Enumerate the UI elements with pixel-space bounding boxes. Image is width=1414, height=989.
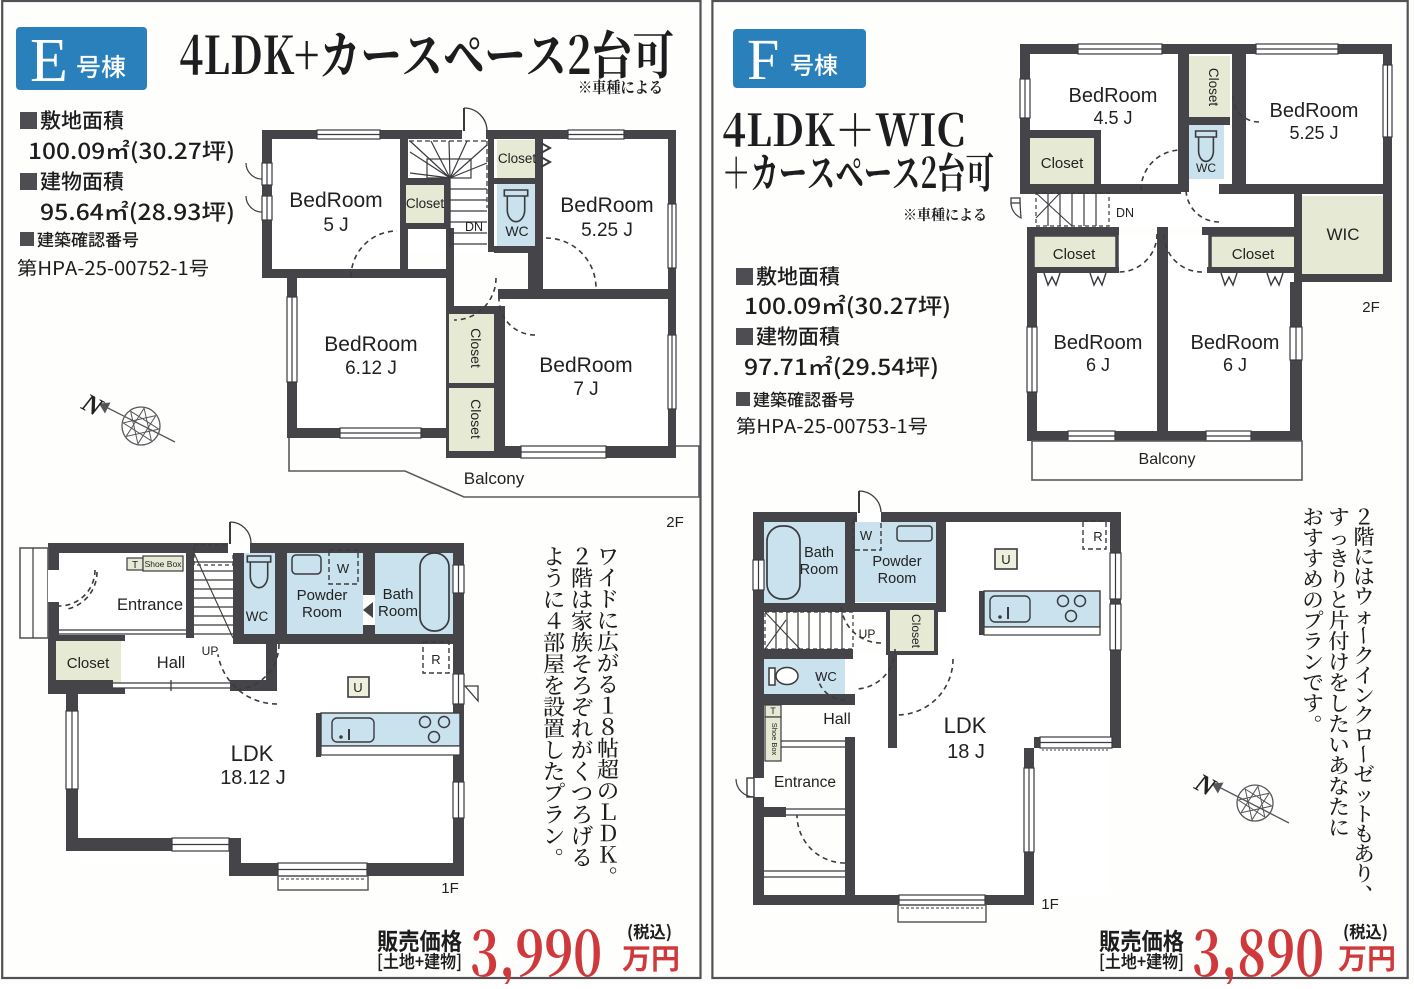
svg-text:R: R: [1093, 529, 1102, 544]
svg-text:WC: WC: [1196, 161, 1216, 175]
svg-text:5.25 J: 5.25 J: [1289, 123, 1338, 143]
svg-text:W: W: [860, 528, 873, 543]
svg-text:Hall: Hall: [823, 711, 851, 728]
svg-text:5.25 J: 5.25 J: [581, 220, 633, 241]
svg-text:Room: Room: [800, 562, 839, 578]
svg-text:R: R: [431, 652, 440, 667]
svg-text:Powder: Powder: [297, 587, 348, 604]
svg-text:WC: WC: [505, 223, 528, 239]
svg-text:DN: DN: [1116, 206, 1134, 220]
svg-text:W: W: [337, 561, 350, 576]
svg-text:6 J: 6 J: [1223, 355, 1247, 375]
svg-text:6 J: 6 J: [1086, 355, 1110, 375]
svg-text:Room: Room: [878, 571, 917, 587]
svg-text:Shoe Box: Shoe Box: [145, 559, 183, 569]
svg-text:Powder: Powder: [872, 554, 921, 570]
svg-text:BedRoom: BedRoom: [560, 194, 653, 217]
svg-text:2F: 2F: [666, 514, 684, 531]
svg-text:BedRoom: BedRoom: [1054, 332, 1143, 354]
svg-text:Shoe Box: Shoe Box: [770, 723, 779, 756]
svg-text:BedRoom: BedRoom: [324, 333, 417, 356]
svg-text:Room: Room: [378, 603, 418, 620]
svg-text:WC: WC: [246, 609, 269, 624]
svg-text:Closet: Closet: [406, 196, 445, 211]
svg-text:Closet: Closet: [1206, 68, 1221, 107]
svg-text:T: T: [132, 560, 138, 571]
svg-text:4.5 J: 4.5 J: [1093, 108, 1132, 128]
svg-text:WC: WC: [815, 669, 837, 684]
svg-text:WIC: WIC: [1326, 225, 1359, 244]
svg-text:Closet: Closet: [1232, 246, 1275, 263]
svg-text:Closet: Closet: [909, 614, 923, 649]
svg-text:Closet: Closet: [498, 151, 537, 166]
svg-text:BedRoom: BedRoom: [289, 189, 382, 212]
svg-text:18 J: 18 J: [947, 741, 985, 763]
svg-text:Bath: Bath: [383, 586, 414, 603]
svg-text:2F: 2F: [1362, 299, 1380, 316]
svg-text:E: E: [30, 27, 68, 95]
svg-text:Balcony: Balcony: [464, 469, 525, 488]
svg-text:7 J: 7 J: [573, 379, 598, 400]
svg-text:Entrance: Entrance: [774, 774, 836, 791]
svg-text:Closet: Closet: [468, 399, 484, 439]
svg-text:Hall: Hall: [157, 654, 185, 672]
svg-text:Closet: Closet: [67, 655, 110, 672]
svg-text:1F: 1F: [1041, 896, 1059, 913]
svg-text:BedRoom: BedRoom: [539, 354, 632, 377]
svg-text:BedRoom: BedRoom: [1069, 85, 1158, 107]
svg-text:Entrance: Entrance: [117, 596, 183, 614]
svg-text:Closet: Closet: [1053, 246, 1096, 263]
svg-text:1F: 1F: [441, 880, 459, 897]
svg-text:DN: DN: [465, 220, 483, 234]
svg-text:BedRoom: BedRoom: [1191, 332, 1280, 354]
svg-text:F: F: [747, 27, 779, 92]
svg-text:U: U: [1001, 552, 1010, 567]
svg-text:Closet: Closet: [1041, 155, 1084, 172]
svg-text:U: U: [353, 680, 362, 695]
svg-text:18.12 J: 18.12 J: [220, 767, 286, 789]
svg-text:Closet: Closet: [468, 328, 484, 368]
svg-text:Room: Room: [302, 604, 342, 621]
svg-text:UP: UP: [859, 627, 876, 641]
svg-text:5 J: 5 J: [323, 215, 348, 236]
svg-text:Balcony: Balcony: [1139, 451, 1196, 468]
svg-text:LDK: LDK: [944, 713, 987, 738]
svg-text:Bath: Bath: [804, 545, 834, 561]
svg-text:LDK: LDK: [231, 741, 274, 766]
svg-text:T: T: [770, 706, 776, 716]
svg-text:6.12 J: 6.12 J: [345, 358, 397, 379]
svg-text:UP: UP: [202, 644, 219, 658]
svg-text:BedRoom: BedRoom: [1270, 100, 1359, 122]
